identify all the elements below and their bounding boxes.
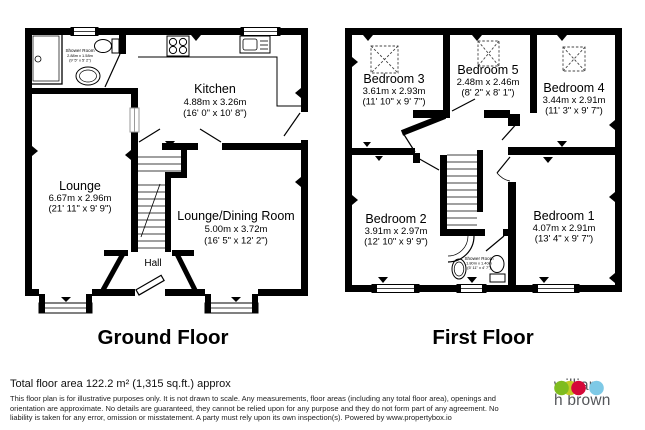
- ff-landing-angled-wall: [402, 116, 445, 133]
- ff-bedroom3-imperial: (11' 10" x 9' 7"): [362, 97, 425, 108]
- ff-bedroom1-metric: 4.07m x 2.91m: [533, 223, 596, 234]
- agent-logo: william h brown: [546, 379, 611, 408]
- gf-kitchen-imperial: (16' 0" x 10' 8"): [183, 108, 247, 119]
- gf-kitchen-metric: 4.88m x 3.26m: [184, 97, 247, 108]
- gf-dining-name: Lounge/Dining Room: [177, 209, 294, 223]
- gf-stairs-icon: [138, 157, 181, 248]
- internal-window-icon: [130, 108, 139, 132]
- ff-bedroom5-name: Bedroom 5: [457, 63, 518, 77]
- gf-dining-metric: 5.00m x 3.72m: [205, 224, 268, 235]
- ff-bedroom2-imperial: (12' 10" x 9' 9"): [364, 237, 428, 248]
- ff-windows: [372, 285, 579, 293]
- gf-kitchen-name: Kitchen: [194, 82, 236, 96]
- window-icon: [533, 285, 579, 293]
- gf-shower-imperial: (9' 5" x 5' 2"): [69, 58, 91, 63]
- hob-icon: [167, 36, 189, 56]
- ff-bedroom5-imperial: (8' 2" x 8' 1"): [461, 88, 514, 99]
- ff-bedroom4-metric: 3.44m x 2.91m: [543, 95, 606, 106]
- window-icon: [241, 28, 280, 36]
- gf-lounge-name: Lounge: [59, 179, 101, 193]
- basin-icon: [452, 259, 466, 279]
- logo-dots-icon: [546, 379, 608, 397]
- basin-icon: [76, 67, 100, 85]
- gf-dining-imperial: (16' 5" x 12' 2"): [204, 236, 268, 247]
- roof-window-icon: [371, 46, 398, 73]
- shower-cubicle-icon: [30, 33, 62, 84]
- ground-floor-plan: Shower Room 2.88m x 1.58m (9' 5" x 5' 2"…: [25, 28, 308, 314]
- ff-bedroom1-name: Bedroom 1: [533, 209, 594, 223]
- ff-labels: Bedroom 3 3.61m x 2.93m (11' 10" x 9' 7"…: [362, 63, 605, 270]
- ff-bedroom3-name: Bedroom 3: [363, 72, 424, 86]
- gf-lounge-imperial: (21' 11" x 9' 9"): [48, 204, 111, 215]
- window-icon: [71, 28, 98, 36]
- bay-window-icon: [39, 297, 92, 313]
- first-floor-plan: Bedroom 3 3.61m x 2.93m (11' 10" x 9' 7"…: [345, 28, 622, 293]
- ff-bedroom2-metric: 3.91m x 2.97m: [365, 226, 428, 237]
- ff-shower-imperial: (5' 11" x 4' 7"): [467, 265, 491, 270]
- first-floor-title: First Floor: [432, 326, 533, 350]
- gf-windows: [39, 28, 280, 314]
- gf-lounge-metric: 6.67m x 2.96m: [49, 193, 112, 204]
- gf-hall-name: Hall: [144, 258, 161, 269]
- ff-stairs-icon: [447, 155, 477, 225]
- ff-bedroom5-metric: 2.48m x 2.46m: [457, 77, 520, 88]
- roof-window-icon: [563, 47, 585, 71]
- ff-bedroom4-name: Bedroom 4: [543, 81, 604, 95]
- floorplan-drawing: Shower Room 2.88m x 1.58m (9' 5" x 5' 2"…: [0, 0, 645, 430]
- bay-window-icon: [205, 297, 258, 313]
- ff-bedroom2-name: Bedroom 2: [365, 212, 426, 226]
- window-icon: [457, 285, 486, 293]
- front-door-icon: [136, 275, 164, 295]
- window-icon: [372, 285, 419, 293]
- sink-icon: [240, 36, 270, 53]
- gf-labels: Shower Room 2.88m x 1.58m (9' 5" x 5' 2"…: [48, 48, 294, 269]
- ground-floor-title: Ground Floor: [98, 326, 229, 350]
- ff-bedroom1-imperial: (13' 4" x 9' 7"): [535, 234, 593, 245]
- floorplan-page: Shower Room 2.88m x 1.58m (9' 5" x 5' 2"…: [0, 0, 645, 430]
- gf-walls: [25, 28, 308, 305]
- total-floor-area: Total floor area 122.2 m² (1,315 sq.ft.)…: [10, 378, 231, 390]
- toilet-icon: [95, 39, 120, 53]
- disclaimer-text: This floor plan is for illustrative purp…: [10, 394, 515, 423]
- ff-bedroom4-imperial: (11' 3" x 9' 7"): [545, 106, 603, 117]
- ff-bedroom3-metric: 3.61m x 2.93m: [363, 86, 426, 97]
